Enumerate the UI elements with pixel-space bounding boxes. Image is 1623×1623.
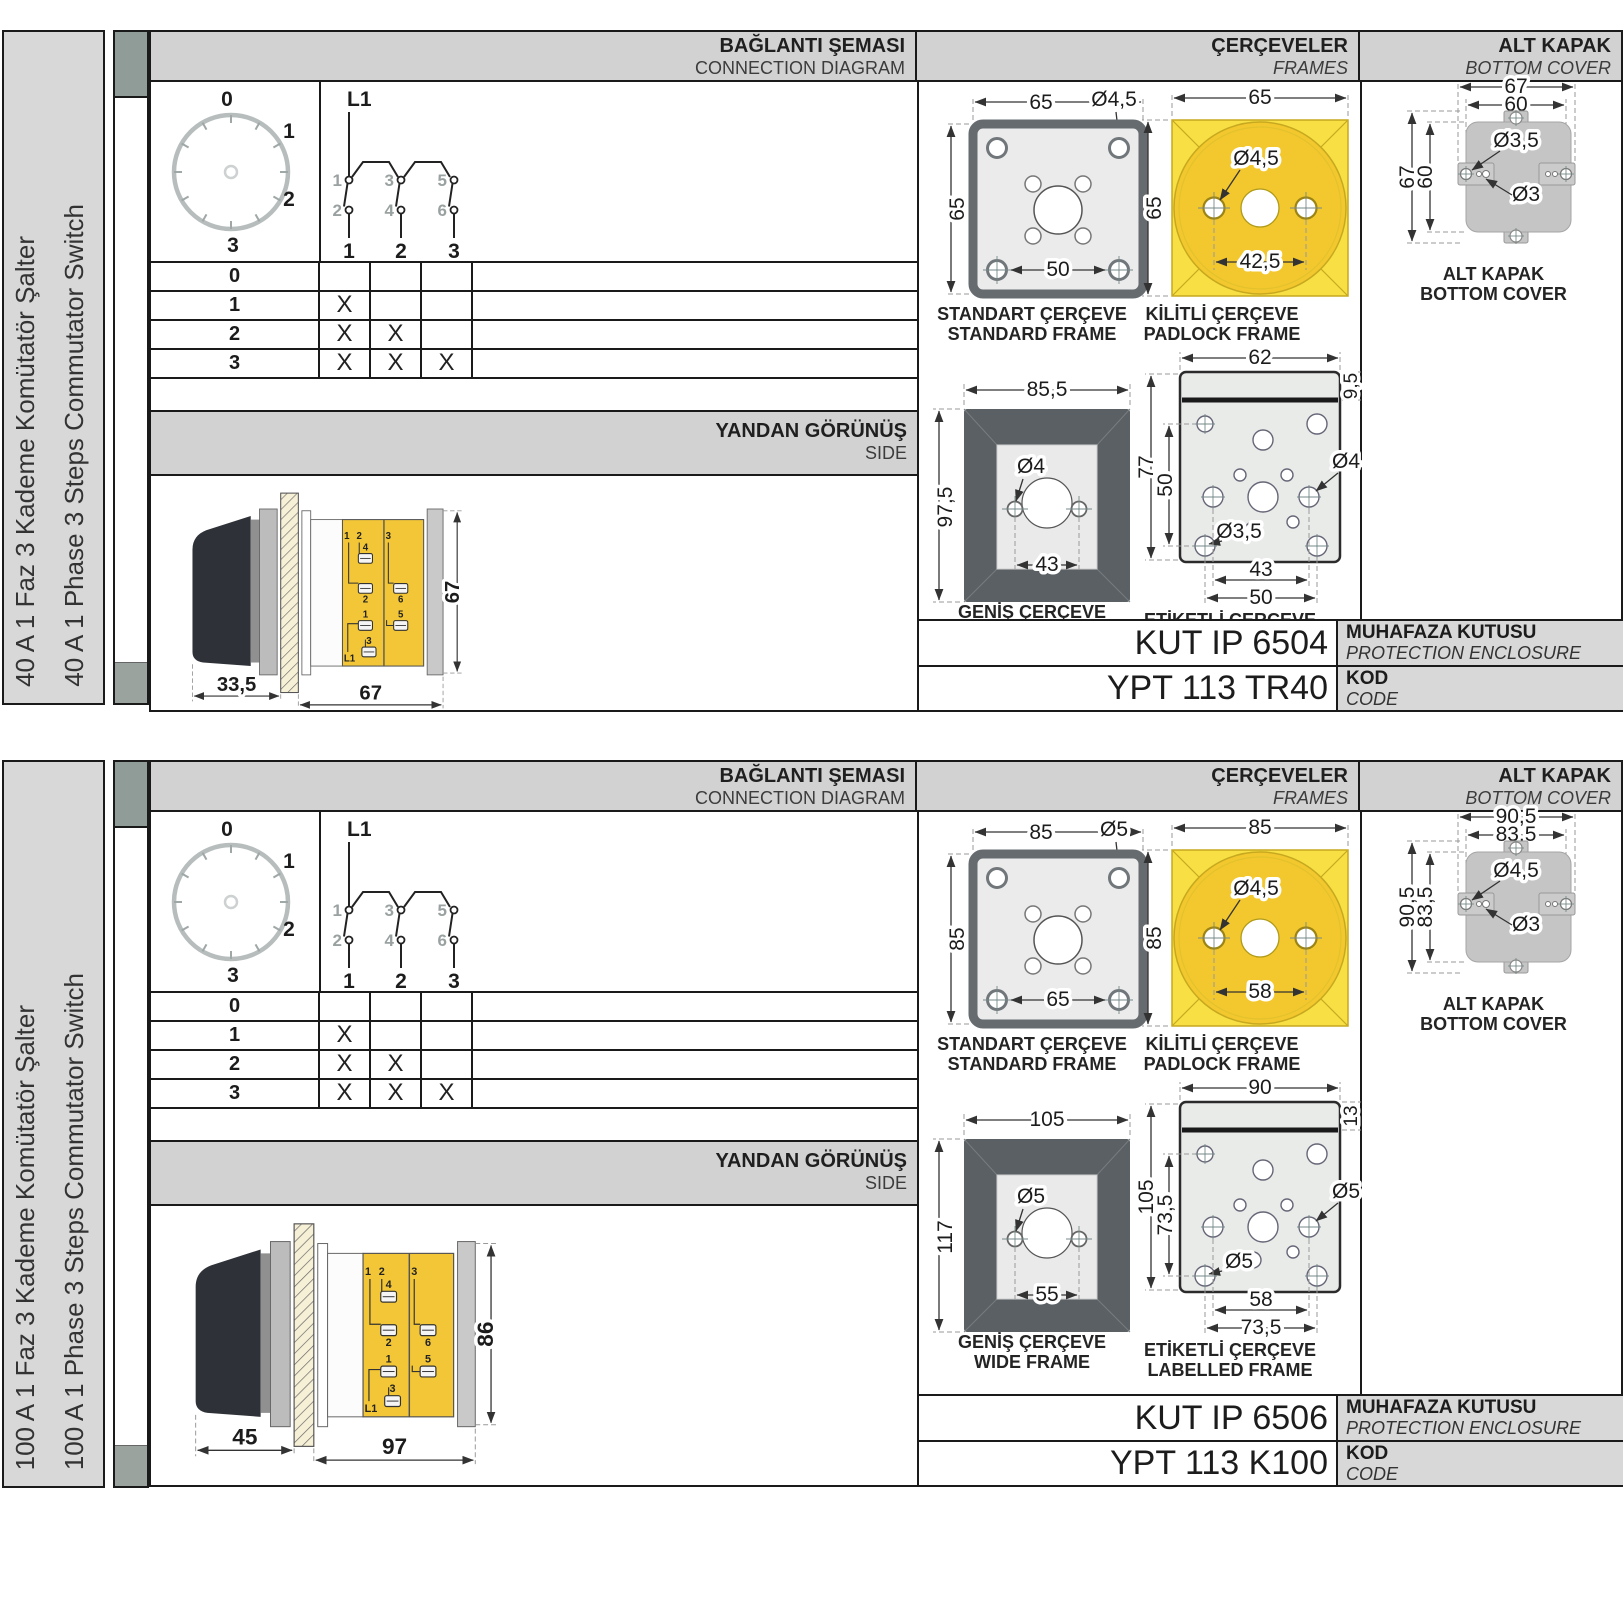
enclosure-code: KUT IP 6504 [919,621,1338,665]
caption-en: BOTTOM COVER [1362,284,1623,304]
dim-hole-span: 55 [1035,1283,1058,1306]
product-title-english: 40 A 1 Phase 3 Steps Commutator Switch [59,204,90,687]
mark-cell: X [371,1080,422,1107]
caption-tr: ALT KAPAK [1362,994,1623,1014]
contact-5: 5 [438,901,447,920]
dim-hole-dia: Ø4,5 [1233,877,1279,900]
contact-1: 1 [333,171,342,190]
dim-body-depth: 67 [359,683,382,705]
dim-frame-width: 85 [1248,816,1271,839]
dim-frame-height: 85 [946,927,969,950]
row-label: 0 [151,263,320,290]
pole-2: 2 [395,240,407,263]
table-row: 2 X X [151,1051,917,1080]
terminal-label: 4 [386,1279,392,1291]
mark-cell: X [320,350,371,377]
dim-frame-width: 85 [1029,821,1052,844]
product-title-turkish: 40 A 1 Faz 3 Kademe Komütatör Şalter [10,236,41,687]
terminal-label: 2 [363,595,368,606]
labelled-frame-drawing: 90 13 105 73,5 [1105,1062,1365,1357]
terminal-label: 1 [363,610,369,621]
code-label-tr: KOD [1346,1443,1623,1465]
code-label: KOD CODE [1338,1442,1623,1485]
table-row: 2 X X [151,321,917,350]
dim-frame-width: 85,5 [1027,378,1068,401]
dim-inner-height: 83,5 [1414,887,1437,928]
code-label: KOD CODE [1338,667,1623,710]
dim-frame-height: 97,5 [934,487,957,528]
header-cover-tr: ALT KAPAK [1360,765,1611,788]
dim-inner-height: 73,5 [1154,1195,1177,1236]
enclosure-label-en: PROTECTION ENCLOSURE [1346,644,1623,663]
terminal-label: L1 [365,1403,378,1415]
terminal-label: L1 [344,654,356,665]
mark-cell: X [422,350,473,377]
header-cover-tr: ALT KAPAK [1360,35,1611,58]
bottom-cover-caption: ALT KAPAK BOTTOM COVER [1362,264,1623,304]
bottom-cover-caption: ALT KAPAK BOTTOM COVER [1362,994,1623,1034]
caption-en: BOTTOM COVER [1362,1014,1623,1034]
dim-frame-height: 65 [946,197,969,220]
mark-cell: X [320,1051,371,1078]
dial-position-1: 1 [283,120,295,143]
side-view-title-tr: YANDAN GÖRÜNÜŞ [151,419,907,443]
mark-cell: X [422,1080,473,1107]
main-panel: BAĞLANTI ŞEMASI CONNECTION DIAGRAM ÇERÇE… [149,30,1623,712]
dim-span-outer: 73,5 [1241,1316,1282,1339]
dim-strip: 9,5 [1341,373,1362,399]
caption-tr: KİLİTLİ ÇERÇEVE [1097,304,1347,324]
index-tab-top [115,762,147,828]
header-connection-tr: BAĞLANTI ŞEMASI [151,35,905,58]
dial-position-3: 3 [227,964,239,987]
terminal-label: 6 [398,595,404,606]
header-connection-diagram: BAĞLANTI ŞEMASI CONNECTION DIAGRAM [151,32,917,80]
row-label: 3 [151,1080,320,1107]
side-view-title-tr: YANDAN GÖRÜNÜŞ [151,1149,907,1173]
dim-hole-dia-side: Ø4 [1332,450,1360,473]
code-label-tr: KOD [1346,668,1623,690]
dim-span-outer: 50 [1249,586,1272,609]
dim-height: 86 [473,1322,498,1347]
terminal-label: 3 [386,531,392,542]
mark-cell [371,292,422,319]
terminal-label: 3 [366,636,372,647]
contact-2: 2 [333,201,342,220]
contact-6: 6 [438,931,447,950]
dim-frame-width: 65 [1248,86,1271,109]
contact-3: 3 [385,901,394,920]
header-frames-tr: ÇERÇEVELER [917,35,1348,58]
mark-cell [422,292,473,319]
enclosure-label-tr: MUHAFAZA KUTUSU [1346,1397,1623,1419]
dim-hole-large: Ø4,5 [1493,859,1539,882]
index-tab-top [115,32,147,98]
dim-inner-height: 50 [1154,473,1177,496]
row-label: 1 [151,1022,320,1049]
header-connection-tr: BAĞLANTI ŞEMASI [151,765,905,788]
dim-body-depth: 97 [382,1434,407,1459]
pole-2: 2 [395,970,407,993]
table-row: 1 X [151,292,917,321]
product-code-row: YPT 113 TR40 KOD CODE [917,665,1623,710]
enclosure-label-tr: MUHAFAZA KUTUSU [1346,622,1623,644]
terminal-label: 2 [386,1337,392,1349]
sidebar: 40 A 1 Faz 3 Kademe Komütatör Şalter 40 … [2,30,105,705]
enclosure-label-en: PROTECTION ENCLOSURE [1346,1419,1623,1438]
contact-4: 4 [385,201,395,220]
dim-frame-width: 105 [1029,1108,1064,1131]
row-label: 1 [151,292,320,319]
dial-position-1: 1 [283,850,295,873]
dim-strip: 13 [1341,1105,1362,1126]
pole-1: 1 [343,240,355,263]
index-tab-bottom [115,1445,147,1486]
terminal-label: 2 [379,1266,385,1278]
pole-1: 1 [343,970,355,993]
connection-diagram-drawing: 0 1 2 3 L1 1 3 5 2 4 6 1 [151,812,917,991]
side-view-title-en: SIDE [151,1173,907,1193]
contact-1: 1 [333,901,342,920]
enclosure-label: MUHAFAZA KUTUSU PROTECTION ENCLOSURE [1338,621,1623,665]
mark-cell [422,321,473,348]
side-view-drawing: 1 2 4 2 3 6 1 5 3 L1 67 33,5 67 [166,484,466,714]
row-label: 2 [151,1051,320,1078]
row-label: 2 [151,321,320,348]
dim-hole-span: 43 [1035,553,1058,576]
product-title-turkish: 100 A 1 Faz 3 Kademe Komütatör Şalter [10,1005,41,1470]
dim-span-inner: 43 [1249,558,1272,581]
dim-hole-large: Ø3,5 [1493,129,1539,152]
dim-hole-dia: Ø4 [1017,455,1045,478]
dim-hole-span: 50 [1046,258,1069,281]
row-label: 3 [151,350,320,377]
product-code-row: YPT 113 K100 KOD CODE [917,1440,1623,1485]
header-connection-en: CONNECTION DIAGRAM [151,788,905,808]
side-view-title-en: SIDE [151,443,907,463]
dim-height: 67 [442,581,464,604]
terminal-label: 1 [344,531,350,542]
contact-5: 5 [438,171,447,190]
product-code: YPT 113 K100 [919,1442,1338,1485]
terminal-label: 1 [386,1354,392,1366]
mark-cell [320,993,371,1020]
mark-cell [371,1022,422,1049]
terminal-label: 4 [363,542,369,553]
contact-4: 4 [385,931,395,950]
dim-hole-span: 65 [1046,988,1069,1011]
dim-frame-width: 90 [1248,1076,1271,1099]
header-frames-tr: ÇERÇEVELER [917,765,1348,788]
side-view-band: YANDAN GÖRÜNÜŞ SIDE [151,410,917,476]
pole-3: 3 [448,240,460,263]
contact-2: 2 [333,931,342,950]
dim-handle-depth: 33,5 [217,674,256,696]
dim-hole-dia-side: Ø5 [1332,1180,1360,1203]
mark-cell: X [371,1051,422,1078]
connection-diagram-drawing: 0 1 2 3 L1 1 3 5 2 4 6 1 [151,82,917,261]
enclosure-code-row: KUT IP 6506 MUHAFAZA KUTUSU PROTECTION E… [917,1394,1623,1440]
switching-table: 0 1 X 2 X X 3 X X X [151,261,917,379]
bottom-cover-drawing: 90,5 83,5 90,5 83,5 [1376,797,1616,1022]
schematic-feed-label: L1 [347,818,372,841]
terminal-label: 5 [398,610,404,621]
dim-span-inner: 58 [1249,1288,1272,1311]
terminal-label: 5 [425,1354,431,1366]
enclosure-code: KUT IP 6506 [919,1396,1338,1440]
terminal-label: 6 [425,1337,431,1349]
terminal-label: 1 [365,1266,371,1278]
caption-tr: ALT KAPAK [1362,264,1623,284]
mark-cell [422,1051,473,1078]
dim-hole-dia: Ø5 [1017,1185,1045,1208]
labelled-frame-drawing: 62 9,5 77 50 [1105,332,1365,627]
side-view-drawing: 1 2 4 2 3 6 1 5 3 L1 86 45 97 [166,1214,501,1470]
mark-cell: X [320,321,371,348]
pole-3: 3 [448,970,460,993]
dial-position-0: 0 [221,818,233,841]
caption-en: LABELLED FRAME [1095,1360,1365,1380]
dim-hole-dia: Ø4,5 [1233,147,1279,170]
mark-cell [320,263,371,290]
dim-handle-depth: 45 [232,1424,257,1449]
table-row: 3 X X X [151,350,917,379]
dim-hole-span: 42,5 [1240,250,1281,273]
padlock-frame-drawing: 65 65 Ø4,5 42,5 [1110,62,1360,317]
terminal-label: 3 [390,1383,396,1395]
mark-cell: X [371,350,422,377]
table-row: 0 [151,993,917,1022]
enclosure-label: MUHAFAZA KUTUSU PROTECTION ENCLOSURE [1338,1396,1623,1440]
dim-hole-small: Ø3 [1512,913,1540,936]
labelled-frame-caption: ETİKETLİ ÇERÇEVE LABELLED FRAME [1095,1340,1365,1380]
table-row: 1 X [151,1022,917,1051]
table-row: 3 X X X [151,1080,917,1109]
dim-frame-height: 85 [1143,926,1166,949]
switching-table: 0 1 X 2 X X 3 X X X [151,991,917,1109]
caption-tr: KİLİTLİ ÇERÇEVE [1097,1034,1347,1054]
code-label-en: CODE [1346,690,1623,709]
dim-hole-span: 58 [1248,980,1271,1003]
index-strip [113,30,149,705]
dial-position-2: 2 [283,188,295,211]
mark-cell: X [320,1080,371,1107]
dim-frame-width: 65 [1029,91,1052,114]
dim-frame-width: 62 [1248,346,1271,369]
index-tab-bottom [115,662,147,703]
dim-hole-dia-small: Ø5 [1225,1250,1253,1273]
dim-frame-height: 65 [1143,196,1166,219]
product-code: YPT 113 TR40 [919,667,1338,710]
dial-position-3: 3 [227,234,239,257]
dim-inner-height: 60 [1414,165,1437,188]
header-connection-diagram: BAĞLANTI ŞEMASI CONNECTION DIAGRAM [151,762,917,810]
caption-tr: ETİKETLİ ÇERÇEVE [1095,1340,1365,1360]
dim-hole-small: Ø3 [1512,183,1540,206]
main-panel: BAĞLANTI ŞEMASI CONNECTION DIAGRAM ÇERÇE… [149,760,1623,1487]
terminal-label: 3 [411,1266,417,1278]
header-connection-en: CONNECTION DIAGRAM [151,58,905,78]
mark-cell [422,993,473,1020]
row-label: 0 [151,993,320,1020]
index-strip [113,760,149,1488]
mark-cell [371,263,422,290]
mark-cell [371,993,422,1020]
enclosure-code-row: KUT IP 6504 MUHAFAZA KUTUSU PROTECTION E… [917,619,1623,665]
mark-cell [422,1022,473,1049]
table-row: 0 [151,263,917,292]
contact-3: 3 [385,171,394,190]
mark-cell: X [320,1022,371,1049]
dial-position-0: 0 [221,88,233,111]
dim-frame-height: 117 [934,1220,957,1253]
contact-6: 6 [438,201,447,220]
sidebar: 100 A 1 Faz 3 Kademe Komütatör Şalter 10… [2,760,105,1488]
terminal-label: 2 [357,531,362,542]
product-title-english: 100 A 1 Phase 3 Steps Commutator Switch [59,973,90,1470]
side-view-band: YANDAN GÖRÜNÜŞ SIDE [151,1140,917,1206]
padlock-frame-drawing: 85 85 Ø4,5 58 [1110,792,1360,1047]
schematic-feed-label: L1 [347,88,372,111]
dial-position-2: 2 [283,918,295,941]
mark-cell [422,263,473,290]
mark-cell: X [371,321,422,348]
dim-hole-dia-small: Ø3,5 [1216,520,1262,543]
mark-cell: X [320,292,371,319]
code-label-en: CODE [1346,1465,1623,1484]
bottom-cover-drawing: 67 60 67 60 [1376,67,1616,292]
